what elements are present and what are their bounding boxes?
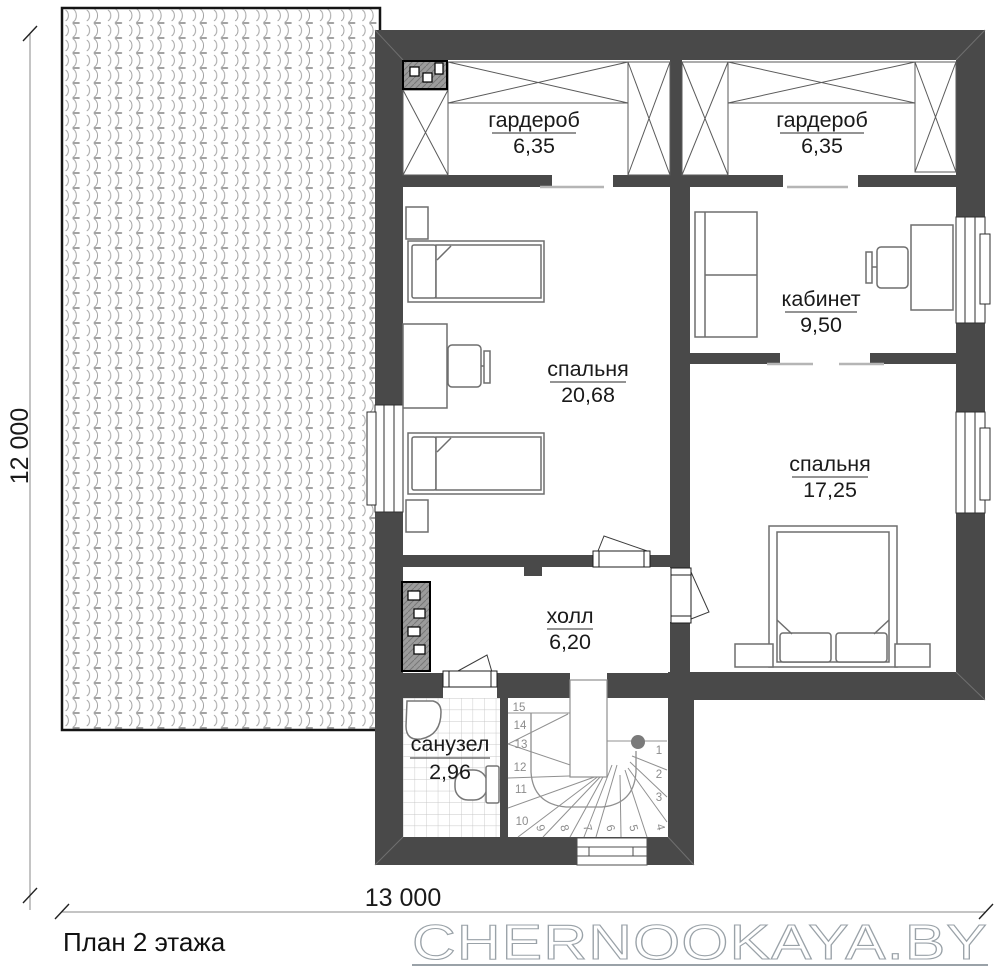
step-number: 14	[514, 720, 527, 732]
step-number: 5	[626, 824, 639, 833]
room-area: 6,35	[801, 134, 843, 158]
stair-entry-landing	[577, 838, 647, 865]
window-bedroom-small	[956, 412, 990, 513]
step-number: 12	[514, 762, 527, 774]
step-number: 11	[515, 784, 527, 796]
room-area: 17,25	[803, 478, 857, 502]
plan-title: План 2 этажа	[63, 927, 226, 957]
room-area: 20,68	[561, 383, 615, 407]
stairwell-void	[570, 680, 607, 777]
dimension-width-label: 13 000	[365, 884, 441, 912]
desk-office	[866, 225, 953, 310]
wall-right-upper	[956, 30, 985, 217]
wall-hall-bottom-c	[607, 673, 670, 698]
room-name: гардероб	[776, 108, 868, 132]
dimension-height: 12 000	[6, 26, 37, 910]
wall-hall-top-a	[403, 555, 595, 567]
room-label-wardrobe-right: гардероб 6,35	[776, 108, 868, 158]
watermark: CHERNOOKAYA.BY	[412, 916, 988, 968]
watermark-text: CHERNOOKAYA.BY	[412, 916, 988, 968]
floor-plan-drawing: 15 14 13 12 11 10 9 8 7 6 5 4 3 2 1 гард…	[0, 0, 1000, 968]
step-number: 8	[557, 824, 570, 833]
wall-center-lower	[670, 622, 690, 672]
stair-newel-post	[631, 735, 645, 749]
wall-center-wardrobe	[670, 60, 682, 175]
chimney-hall	[402, 582, 430, 671]
step-number: 3	[656, 792, 662, 804]
closet-box	[448, 62, 628, 103]
room-label-wardrobe-left: гардероб 6,35	[488, 108, 580, 158]
step-number: 13	[515, 739, 528, 751]
room-area: 9,50	[800, 313, 842, 337]
room-name: холл	[546, 604, 593, 628]
room-name: санузел	[411, 732, 490, 756]
window-bedroom-large	[367, 405, 403, 512]
dimension-height-label: 12 000	[6, 408, 34, 484]
room-label-bedroom-large: спальня 20,68	[547, 357, 629, 407]
room-name: кабинет	[781, 287, 860, 311]
double-bed	[769, 526, 897, 667]
step-number: 7	[580, 824, 593, 833]
room-area: 6,35	[513, 134, 555, 158]
single-bed-top	[408, 241, 544, 302]
step-number: 9	[533, 824, 546, 833]
nightstand	[895, 644, 930, 667]
wall-bath-stair-divider	[500, 698, 508, 838]
step-number: 6	[603, 824, 616, 833]
roof-plane	[62, 8, 380, 730]
step-number: 2	[656, 769, 662, 781]
pillow	[836, 633, 887, 662]
door-bedroom-large	[593, 536, 650, 567]
wall-bottom-right	[668, 672, 985, 700]
door-bedroom-small	[671, 568, 709, 623]
chimney-wardrobe	[403, 61, 447, 89]
room-name: спальня	[547, 357, 629, 381]
closet-box	[728, 62, 915, 103]
closet-box	[628, 62, 670, 175]
wall-right-middle	[956, 323, 985, 412]
room-label-hall: холл 6,20	[546, 604, 593, 654]
bookcase-office	[695, 212, 757, 337]
room-area: 2,96	[429, 760, 471, 784]
wall-office-b	[870, 353, 956, 364]
floor-plan-canvas: 15 14 13 12 11 10 9 8 7 6 5 4 3 2 1 гард…	[0, 0, 1000, 968]
wall-hall-bottom-a	[403, 673, 443, 698]
room-name: гардероб	[488, 108, 580, 132]
room-label-office: кабинет 9,50	[781, 287, 860, 337]
wall-left-upper	[375, 30, 403, 405]
wall-center-main	[670, 175, 690, 568]
wall-duct-stub	[524, 560, 542, 576]
desk-bedroom	[403, 324, 490, 408]
chair	[448, 345, 481, 387]
room-area: 6,20	[549, 630, 591, 654]
wall-wardrobe-right-a	[682, 175, 783, 187]
nightstand	[406, 500, 428, 532]
closet-box	[915, 62, 956, 172]
step-number: 1	[656, 745, 662, 757]
room-name: спальня	[789, 452, 871, 476]
wall-hall-bottom-b	[497, 673, 570, 698]
wall-left-lower	[375, 512, 403, 865]
wall-wardrobe-left-b	[613, 175, 670, 187]
room-label-bedroom-small: спальня 17,25	[789, 452, 871, 502]
wall-wardrobe-right-b	[858, 175, 956, 187]
closet-box	[403, 90, 448, 175]
wall-office-a	[690, 353, 780, 364]
step-number: 4	[653, 823, 666, 833]
wall-wardrobe-left-a	[403, 175, 552, 187]
dimension-width: 13 000	[55, 884, 993, 919]
roof-tiled-area	[62, 8, 380, 730]
wall-top	[375, 30, 985, 60]
pillow	[780, 633, 831, 662]
nightstand	[735, 644, 773, 667]
wall-hall-top-b	[650, 555, 670, 567]
chair	[877, 247, 908, 288]
door-bathroom	[443, 655, 497, 687]
step-number: 10	[516, 816, 529, 828]
closet-box	[682, 62, 728, 175]
nightstand	[406, 207, 428, 239]
step-number: 15	[513, 702, 526, 714]
window-office	[956, 217, 990, 323]
wall-right-lower	[956, 513, 985, 700]
single-bed-bottom	[408, 433, 544, 494]
